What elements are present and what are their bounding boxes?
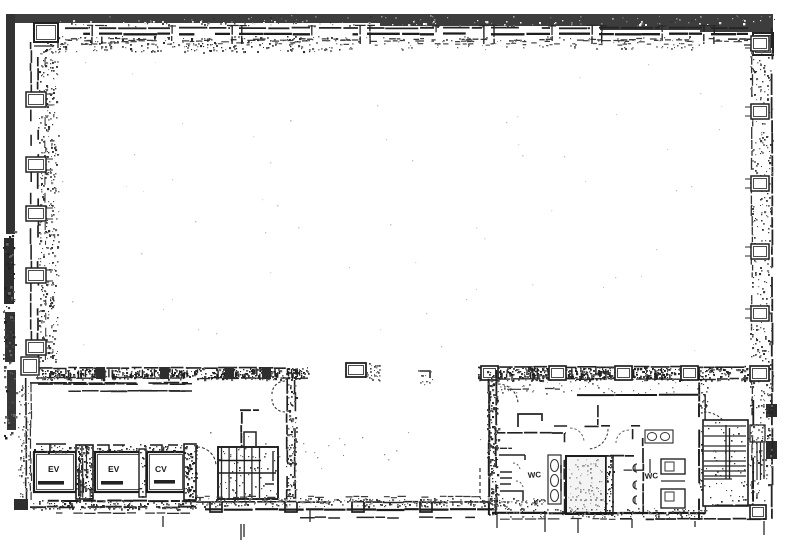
svg-text:CV: CV: [155, 464, 167, 474]
svg-text:WC: WC: [528, 470, 542, 480]
svg-text:WC: WC: [645, 471, 659, 481]
svg-text:EV: EV: [48, 464, 60, 474]
svg-text:EV: EV: [108, 464, 120, 474]
